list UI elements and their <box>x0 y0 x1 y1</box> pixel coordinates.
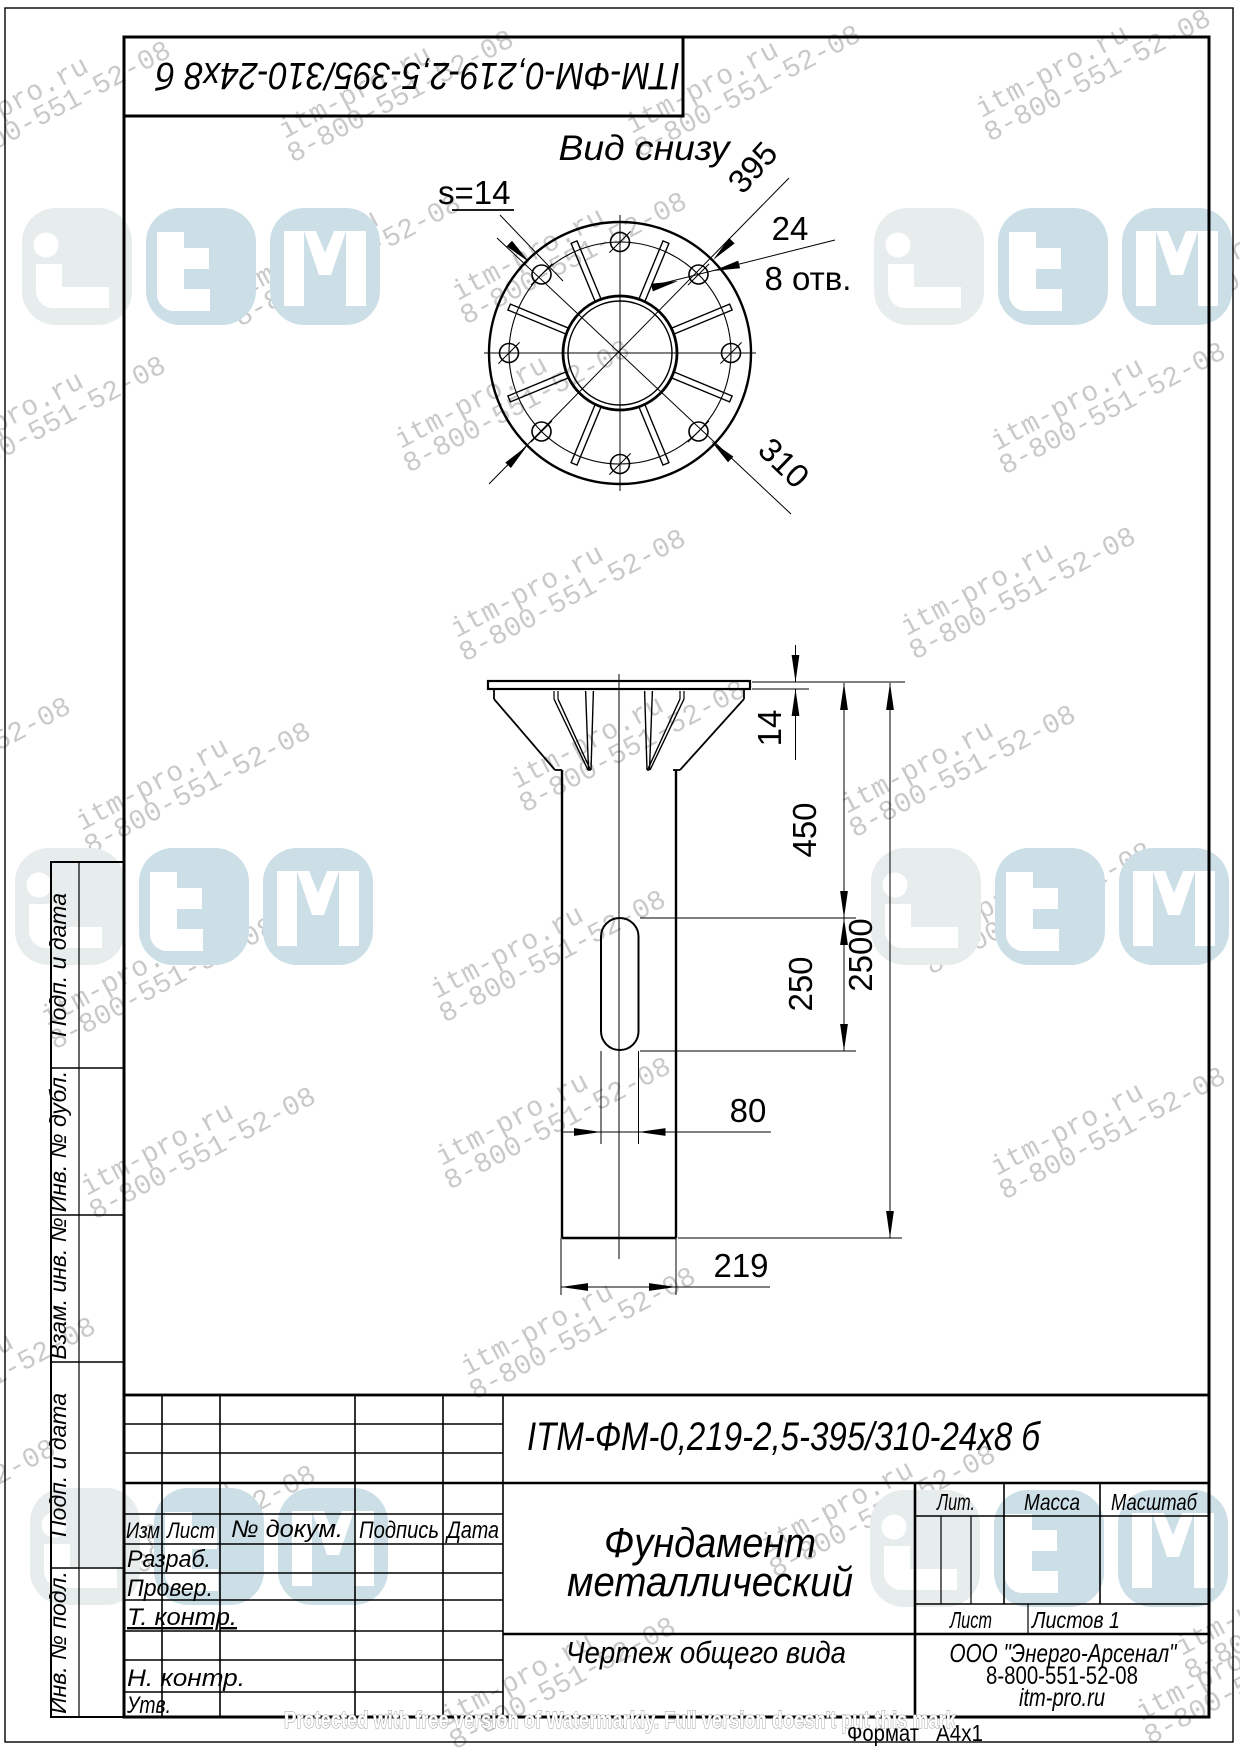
svg-text:Чертеж общего вида: Чертеж общего вида <box>566 1635 846 1670</box>
svg-text:Масштаб: Масштаб <box>1111 1489 1198 1515</box>
svg-text:14: 14 <box>751 710 788 747</box>
svg-text:8 отв.: 8 отв. <box>765 260 852 297</box>
svg-text:Взам. инв. №: Взам. инв. № <box>45 1217 71 1359</box>
svg-text:ITM-ФМ-0,219-2,5-395/310-24x8: ITM-ФМ-0,219-2,5-395/310-24x8 б <box>155 54 680 96</box>
svg-text:Инв. № дубл.: Инв. № дубл. <box>45 1071 71 1212</box>
svg-text:80: 80 <box>730 1092 767 1129</box>
svg-text:450: 450 <box>786 802 823 857</box>
svg-text:Инв. № подл.: Инв. № подл. <box>45 1571 71 1714</box>
svg-text:itm-pro.ru: itm-pro.ru <box>1019 1684 1105 1712</box>
svg-text:Т. контр.: Т. контр. <box>127 1604 237 1631</box>
svg-text:Разраб.: Разраб. <box>127 1546 211 1573</box>
svg-text:Лист: Лист <box>949 1607 992 1633</box>
svg-text:Вид снизу: Вид снизу <box>559 129 733 168</box>
svg-text:Масса: Масса <box>1024 1489 1080 1515</box>
svg-text:металлический: металлический <box>567 1558 853 1605</box>
svg-text:8-800-551-52-08: 8-800-551-52-08 <box>0 36 177 182</box>
svg-text:250: 250 <box>782 956 819 1011</box>
svg-text:№ докум.: № докум. <box>231 1516 343 1543</box>
svg-text:2500: 2500 <box>842 918 879 991</box>
svg-text:Н. контр.: Н. контр. <box>127 1665 245 1692</box>
svg-text:8-800-551-52-08: 8-800-551-52-08 <box>0 351 172 497</box>
svg-text:24: 24 <box>772 210 809 247</box>
svg-text:ITM-ФМ-0,219-2,5-395/310-24x8: ITM-ФМ-0,219-2,5-395/310-24x8 б <box>527 1415 1041 1459</box>
svg-text:Дата: Дата <box>445 1517 499 1544</box>
svg-text:Подпись: Подпись <box>359 1517 439 1544</box>
svg-text:Protected with free version of: Protected with free version of Watermark… <box>284 1707 956 1734</box>
svg-text:219: 219 <box>713 1247 768 1284</box>
svg-text:Изм: Изм <box>126 1518 160 1543</box>
svg-text:Лист: Лист <box>165 1518 215 1543</box>
svg-text:Подп. и дата: Подп. и дата <box>45 893 71 1037</box>
svg-text:395: 395 <box>720 134 784 200</box>
svg-text:Листов 1: Листов 1 <box>1030 1607 1120 1633</box>
svg-text:8-800-551-52-08: 8-800-551-52-08 <box>0 692 77 838</box>
svg-text:Лит.: Лит. <box>936 1489 975 1515</box>
svg-text:Провер.: Провер. <box>127 1575 213 1602</box>
svg-text:s=14: s=14 <box>438 174 510 211</box>
svg-text:Подп. и дата: Подп. и дата <box>45 1393 71 1537</box>
svg-text:Утв.: Утв. <box>126 1692 171 1719</box>
